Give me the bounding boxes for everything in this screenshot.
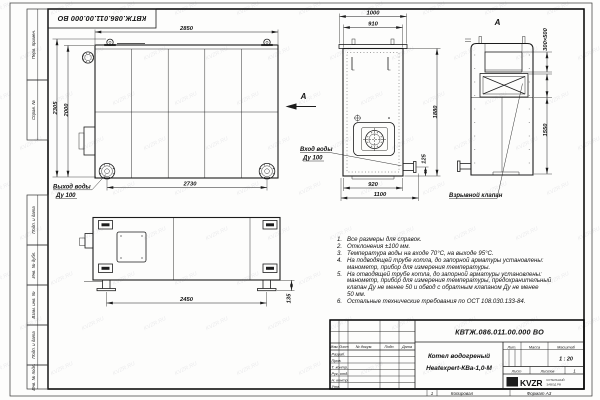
margin-label-inv-podl: Инв. № подл. bbox=[31, 363, 36, 390]
view-direction-arrow: А bbox=[286, 92, 317, 110]
tb-header-list2: Лист bbox=[511, 369, 522, 373]
dim-rear-height: 1550 bbox=[543, 123, 549, 137]
sheet-frame: 1 Копировал Формат А3 bbox=[10, 3, 592, 396]
dim-front-height-inner: 2000 bbox=[64, 103, 70, 118]
dim-side-height: 1880 bbox=[433, 105, 439, 119]
valve-label: Взрывной клапан bbox=[449, 192, 503, 199]
tb-header-izm: Изм. bbox=[330, 345, 338, 349]
tb-row-tkontr: Т. контр. bbox=[332, 365, 348, 369]
technical-notes: 1.Все размеры для справок. 2.Отклонения … bbox=[337, 237, 569, 306]
tb-name-line2: Heatexpert-КВа-1,0-М bbox=[426, 365, 492, 372]
tb-header-listov: Листов bbox=[540, 369, 555, 373]
note-line: клапан Ду не менее 50 и обвод с обратным… bbox=[337, 285, 569, 292]
dim-side-pipe-height: 125 bbox=[422, 153, 428, 163]
designation-box: КВТЖ.086.011.00.000 ВО bbox=[48, 9, 156, 28]
dim-rear-flue: 300×500 bbox=[543, 27, 549, 51]
side-view bbox=[339, 39, 416, 179]
inlet-label-line2: Ду 100 bbox=[302, 156, 323, 162]
tb-header-data: Дата bbox=[401, 345, 412, 349]
tb-row-rukotd: Рук. отд. bbox=[332, 372, 349, 376]
plan-view-dimensions: 2450 135 bbox=[107, 280, 295, 306]
dim-plan-length: 2450 bbox=[179, 297, 194, 303]
drawing-canvas: 1 Копировал Формат А3 Перв. примен. Спра… bbox=[0, 0, 600, 400]
tb-header-masshtab: Масштаб bbox=[557, 345, 576, 349]
tb-sheets-count: 1 bbox=[573, 369, 576, 374]
inlet-label-line1: Вход воды bbox=[300, 147, 333, 153]
margin-label-podp-data-1: Подп. и дата bbox=[31, 206, 36, 234]
dim-side-depth-outer: 1100 bbox=[374, 192, 387, 198]
tb-row-nkontr: Н. контр. bbox=[332, 378, 349, 382]
format-label: Формат А3 bbox=[527, 391, 552, 396]
dim-front-height-outer: 2305 bbox=[53, 101, 59, 116]
tb-row-utv: Утв. bbox=[332, 385, 341, 389]
tb-row-prov: Пров. bbox=[332, 359, 342, 363]
front-view bbox=[79, 39, 278, 179]
note-line: 6.Остальные технические требования по ОС… bbox=[337, 299, 569, 306]
drawing-sheet: KVZR.RUKVZR.RUKVZR.RUKVZR.RUKVZR.RUKVZR.… bbox=[0, 0, 600, 400]
outlet-label-line1: Выход воды bbox=[53, 184, 92, 190]
logo-text: KVZR bbox=[520, 378, 542, 388]
designation-rotated: КВТЖ.086.011.00.000 ВО bbox=[57, 14, 146, 23]
dim-side-width-outer: 1000 bbox=[367, 11, 381, 17]
logo-mark-icon bbox=[507, 377, 519, 387]
tb-designation: КВТЖ.086.011.00.000 ВО bbox=[455, 328, 544, 337]
outlet-label-line2: Ду 100 bbox=[55, 193, 76, 199]
dim-front-width-top: 2850 bbox=[179, 26, 194, 32]
margin-column: Перв. примен. Справ. № Подп. и дата Инв.… bbox=[27, 9, 48, 391]
side-view-dimensions: 1000 910 1880 125 920 1100 Вход воды Ду … bbox=[300, 11, 441, 201]
margin-label-perv-primen: Перв. примен. bbox=[31, 30, 36, 59]
copied-by-label: Копировал bbox=[451, 391, 474, 396]
rear-view-dimensions: 300×500 1550 Взрывной клапан bbox=[449, 27, 552, 199]
rear-view-title: А bbox=[494, 18, 501, 27]
tb-scale-value: 1 : 20 bbox=[559, 357, 573, 363]
title-block: Изм. Лист № докум. Подп. Дата Разраб. Пр… bbox=[330, 320, 584, 389]
rear-view: А bbox=[458, 18, 534, 175]
org-name-line1: КОТЕЛЬНЫЙ bbox=[547, 378, 565, 382]
tb-header-lit: Лит. bbox=[507, 345, 517, 349]
tb-row-razrab: Разраб. bbox=[332, 352, 346, 356]
dim-side-depth-inner: 920 bbox=[368, 182, 378, 188]
dim-side-width-inner: 910 bbox=[368, 22, 378, 28]
dim-front-width-bottom: 2730 bbox=[183, 182, 198, 188]
dim-plan-leg-height: 135 bbox=[287, 293, 293, 303]
plan-view bbox=[80, 218, 281, 291]
margin-label-vzam-inv: Взам. инв. № bbox=[31, 291, 36, 318]
margin-label-podp-data-2: Подп. и дата bbox=[31, 331, 36, 359]
tb-name-line1: Котел водогреный bbox=[428, 352, 490, 360]
view-letter: А bbox=[300, 92, 307, 101]
tb-header-massa: Масса bbox=[529, 345, 540, 349]
org-name-line2: ЗАВОД РФ bbox=[547, 383, 562, 387]
margin-label-sprav-no: Справ. № bbox=[31, 100, 36, 120]
tb-header-podp: Подп. bbox=[384, 345, 394, 349]
tb-header-list: Лист bbox=[338, 345, 349, 349]
tb-header-doc: № докум. bbox=[356, 345, 373, 349]
copy-zone-number: 1 bbox=[431, 391, 434, 396]
margin-label-inv-dubl: Инв. № дубл. bbox=[31, 251, 36, 278]
